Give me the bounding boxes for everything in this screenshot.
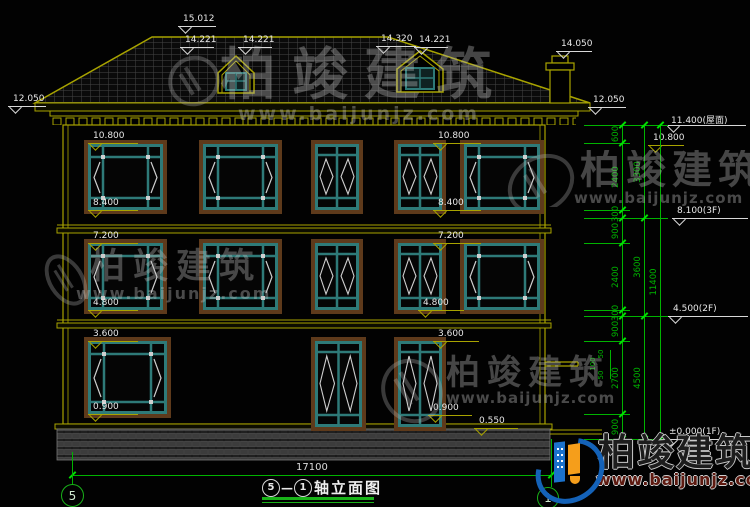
elevation-label: 12.050 — [593, 95, 625, 105]
extension-line — [584, 439, 668, 440]
dim-label: 2700 — [611, 367, 621, 389]
dim-label: 2400 — [611, 166, 621, 188]
elevation-label: 8.400 — [93, 198, 119, 208]
chimney — [546, 56, 574, 103]
elevation-label: 7.200 — [93, 231, 119, 241]
window — [460, 140, 544, 214]
elevation-label: 8.400 — [438, 198, 464, 208]
elevation-label: 15.012 — [183, 14, 215, 24]
window — [199, 140, 282, 214]
dim-label: 900 — [611, 222, 621, 238]
axis-bubble-5: 5 — [61, 484, 84, 507]
floor-band-2f-1f — [57, 320, 551, 328]
dim-label: 300 — [611, 206, 621, 222]
extension-line — [584, 218, 668, 219]
dim-label: 50 — [597, 371, 605, 380]
elevation-label: 3.600 — [438, 329, 464, 339]
dim-label: 900 — [611, 320, 621, 336]
title-underline-thick — [262, 497, 374, 500]
elevation-label: 14.050 — [561, 39, 593, 49]
overall-dim-line — [72, 475, 551, 476]
elevation-label: 10.800 — [438, 131, 470, 141]
elevation-label: 12.050 — [13, 94, 45, 104]
axis-bubble-1: 1 — [537, 487, 559, 507]
elevation-label: 0.900 — [433, 403, 459, 413]
floor-band-3f-2f — [57, 225, 551, 233]
title-axis-start: 5 — [262, 479, 280, 497]
elevation-label: 4.500(2F) — [673, 304, 717, 314]
elevation-label: 10.800 — [93, 131, 125, 141]
dim-label: 2400 — [611, 266, 621, 288]
window — [311, 140, 363, 214]
pipe-dim-line — [610, 350, 611, 379]
elevation-label: 10.800 — [653, 133, 685, 143]
main-roof — [35, 37, 590, 125]
dim-label: 50 — [597, 350, 605, 359]
elevation-label: 14.221 — [419, 35, 451, 45]
elevation-drawing-canvas: 15.01214.22114.22114.32014.22114.05012.0… — [0, 0, 750, 507]
elevation-label: 0.900 — [93, 402, 119, 412]
title-underline-thin — [262, 502, 374, 503]
dim-chain-1 — [622, 125, 623, 439]
elevation-label: 0.550 — [479, 416, 505, 426]
drawing-title: 5 — 1 轴立面图 — [262, 477, 382, 498]
dim-label: 600 — [611, 126, 621, 142]
elevation-label: 14.221 — [243, 35, 275, 45]
elevation-label: ±0.000(1F) — [669, 427, 720, 437]
extension-line — [584, 125, 668, 126]
dim-label: 4500 — [633, 367, 643, 389]
vent-pipe — [545, 362, 578, 366]
dim-chain-3 — [660, 125, 661, 439]
title-text: 轴立面图 — [314, 477, 382, 498]
overall-dimension-label: 17100 — [296, 462, 328, 473]
window — [311, 239, 363, 314]
title-axis-end: 1 — [294, 479, 312, 497]
axis-1-line — [551, 439, 552, 487]
dim-label: 3300 — [633, 161, 643, 183]
dim-label: 100 — [589, 357, 597, 370]
title-separator: — — [281, 481, 293, 495]
dim-label: 900 — [611, 418, 621, 434]
elevation-label: 8.100(3F) — [677, 206, 721, 216]
elevation-label: 4.800 — [423, 298, 449, 308]
dim-label: 11400 — [649, 268, 659, 295]
extension-line — [584, 316, 668, 317]
axis-5-line — [72, 452, 73, 484]
dim-chain-2 — [644, 125, 645, 439]
window — [311, 337, 366, 431]
window — [460, 239, 544, 314]
dim-label: 300 — [611, 305, 621, 321]
elevation-label: 4.800 — [93, 298, 119, 308]
elevation-label: 3.600 — [93, 329, 119, 339]
elevation-label: 14.221 — [185, 35, 217, 45]
elevation-label: 11.400(屋面) — [671, 113, 728, 126]
window — [199, 239, 282, 314]
dim-label: 3600 — [633, 256, 643, 278]
elevation-label: 14.320 — [381, 34, 413, 44]
elevation-label: 7.200 — [438, 231, 464, 241]
